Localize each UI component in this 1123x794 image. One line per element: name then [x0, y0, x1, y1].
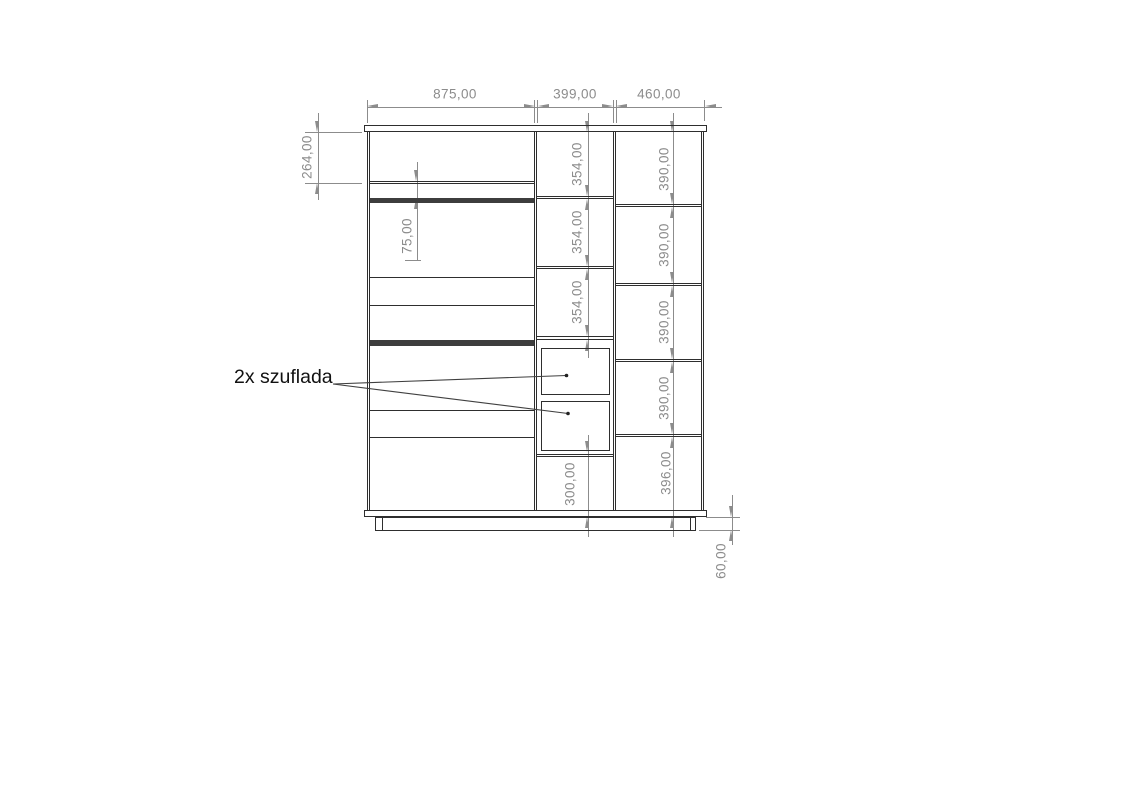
dim-width-460: 460,00: [637, 87, 681, 102]
extension-line: [699, 530, 740, 531]
plinth: [375, 517, 696, 531]
shelf-middle-bottom: [537, 454, 613, 457]
dimension-arrow: [670, 348, 674, 359]
dimension-arrow: [616, 104, 627, 108]
extension-line: [613, 100, 614, 123]
drawer-front-2: [541, 401, 610, 451]
dimension-arrow: [670, 437, 674, 448]
dimension-arrow: [585, 325, 589, 336]
dim-height-354-3: 354,00: [570, 280, 585, 324]
dimension-arrow: [729, 506, 733, 517]
drawers-callout-label: 2x szuflada: [234, 366, 333, 389]
shelf-right-3: [616, 359, 701, 363]
extension-line: [405, 260, 421, 261]
shelf-right-1: [616, 204, 701, 208]
dim-height-390-1: 390,00: [657, 147, 672, 191]
shelf-middle-1: [537, 196, 613, 199]
dimension-arrow: [585, 199, 589, 210]
dim-height-354-1: 354,00: [570, 142, 585, 186]
dimension-arrow: [538, 104, 549, 108]
leader-lines: [0, 0, 1123, 794]
dim-height-354-2: 354,00: [570, 210, 585, 254]
dimension-arrow: [670, 207, 674, 218]
shelf-middle-2: [537, 266, 613, 269]
left-drawer-line-2: [370, 437, 534, 438]
dim-height-75: 75,00: [400, 218, 415, 254]
extension-line: [305, 183, 362, 184]
handle-groove-1: [370, 198, 534, 204]
dimension-arrow: [315, 183, 319, 194]
dimension-arrow: [414, 170, 418, 181]
dimension-arrow: [670, 362, 674, 373]
dim-height-300: 300,00: [563, 462, 578, 506]
dimension-arrow: [315, 121, 319, 132]
dimension-arrow: [670, 423, 674, 434]
dim-height-60: 60,00: [714, 543, 729, 579]
dimension-arrow: [705, 104, 716, 108]
dimension-arrow: [367, 104, 378, 108]
handle-groove-2: [370, 340, 534, 346]
dim-height-390-4: 390,00: [657, 376, 672, 420]
dim-width-399: 399,00: [553, 87, 597, 102]
drawer-front-1: [541, 348, 610, 395]
dim-width-875: 875,00: [433, 87, 477, 102]
cabinet-left-side: [367, 132, 371, 511]
dimension-arrow: [670, 272, 674, 283]
cabinet-divider-2: [613, 132, 617, 511]
extension-line: [704, 100, 705, 121]
dimension-arrow: [524, 104, 535, 108]
plinth-left-foot-line: [382, 517, 383, 530]
dim-height-396: 396,00: [659, 451, 674, 495]
dimension-arrow: [729, 530, 733, 541]
dimension-arrow: [670, 193, 674, 204]
dim-height-264: 264,00: [300, 135, 315, 179]
dimension-arrow: [602, 104, 613, 108]
dimension-arrow: [585, 185, 589, 196]
extension-line: [706, 517, 740, 518]
dimension-arrow: [585, 269, 589, 280]
shelf-right-2: [616, 283, 701, 287]
extension-line: [305, 132, 362, 133]
cabinet-right-side: [701, 132, 705, 511]
dimension-arrow: [670, 286, 674, 297]
dim-height-390-3: 390,00: [657, 300, 672, 344]
technical-drawing: 875,00 399,00 460,00 264,00 75,00 354,00…: [0, 0, 1123, 794]
dimension-arrow: [585, 255, 589, 266]
shelf-left-mid-2: [370, 305, 534, 306]
dim-height-390-2: 390,00: [657, 223, 672, 267]
shelf-left-top: [370, 181, 534, 185]
shelf-middle-3: [537, 336, 613, 340]
dimension-line-middle-chain: [588, 113, 589, 358]
plinth-right-foot-line: [690, 517, 691, 530]
shelf-left-mid-1: [370, 277, 534, 278]
shelf-right-4: [616, 434, 701, 438]
left-drawer-line-1: [370, 410, 534, 411]
